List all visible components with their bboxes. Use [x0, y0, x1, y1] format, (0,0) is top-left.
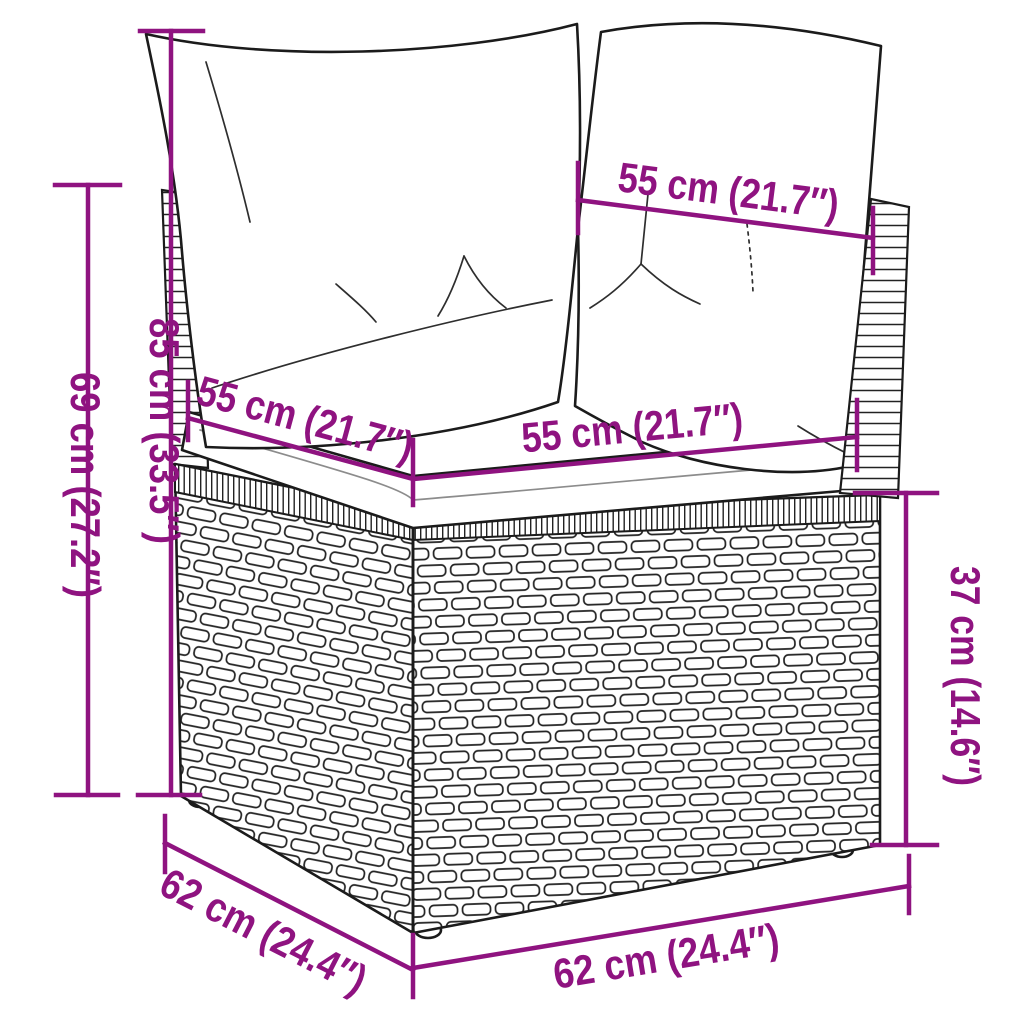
dimension-label-side-height: 69 cm (27.2″) — [62, 372, 109, 598]
dimension-side-height: 69 cm (27.2″) — [55, 185, 120, 795]
dimension-label-base-height: 37 cm (14.6″) — [942, 566, 989, 786]
sofa-diagram-canvas: 85 cm (33.5″) 69 cm (27.2″) 55 cm (21.7″… — [0, 0, 1024, 1024]
product-dimension-diagram: 85 cm (33.5″) 69 cm (27.2″) 55 cm (21.7″… — [0, 0, 1024, 1024]
rattan-base — [175, 464, 880, 938]
sofa-drawing — [146, 23, 909, 938]
dimension-label-overall-height: 85 cm (33.5″) — [141, 318, 188, 544]
